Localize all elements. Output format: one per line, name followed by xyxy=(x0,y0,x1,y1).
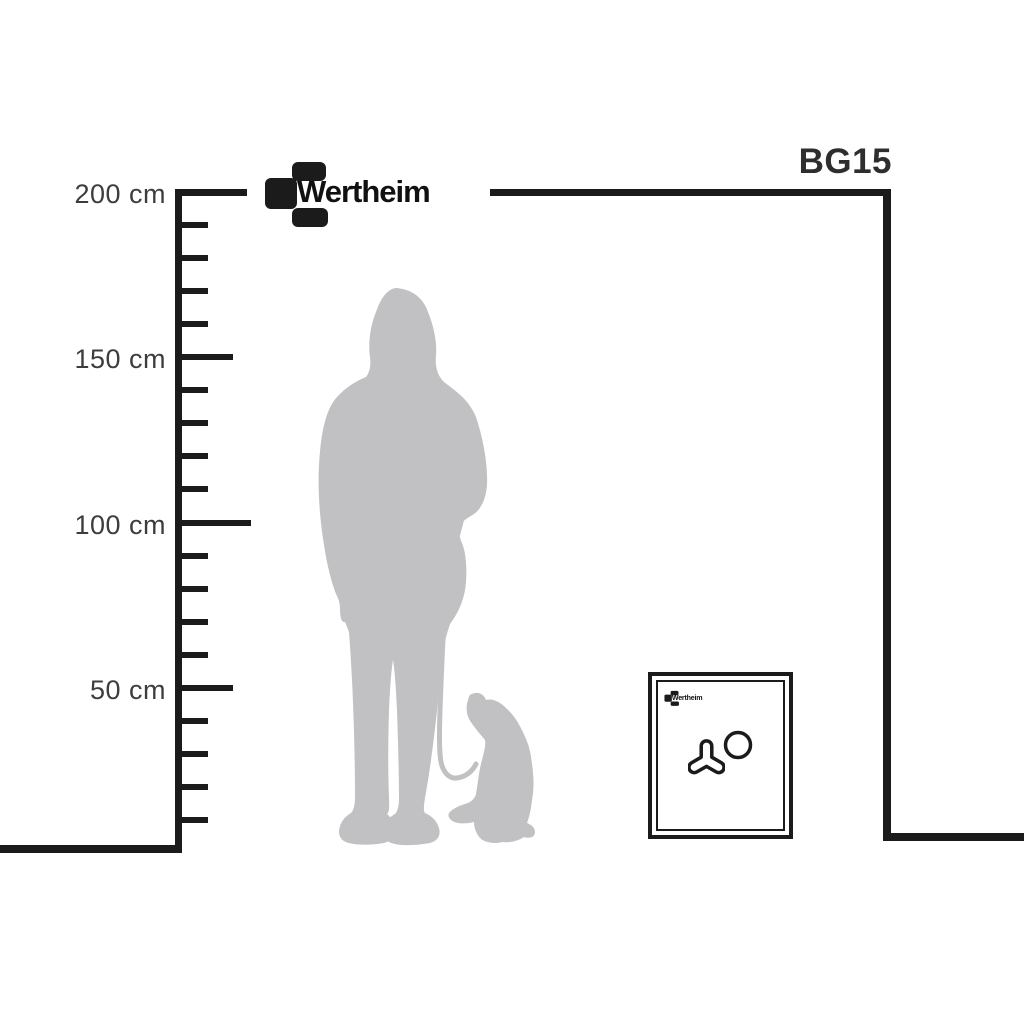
dog-silhouette-icon xyxy=(448,693,535,843)
safe-logo-block-bottom xyxy=(671,702,679,706)
safe-brand-logo: Wertheim xyxy=(664,690,710,707)
person-and-dog-figure xyxy=(0,0,1024,1024)
safe-illustration: Wertheim xyxy=(648,672,793,839)
safe-logo-wordmark: Wertheim xyxy=(672,694,703,702)
woman-silhouette-icon xyxy=(319,288,488,845)
safe-handle-icon xyxy=(688,739,725,778)
size-comparison-diagram: 200 cm150 cm100 cm50 cm Wertheim BG15 We… xyxy=(0,0,1024,1024)
safe-dial-icon xyxy=(723,730,753,760)
safe-door-border: Wertheim xyxy=(656,680,785,831)
